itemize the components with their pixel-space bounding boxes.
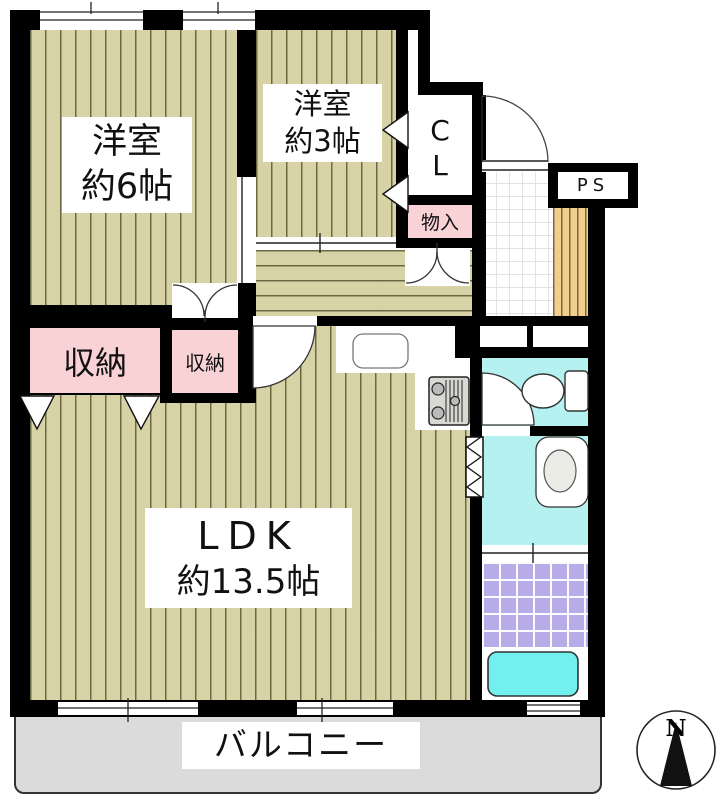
bedroom-6-name: 洋室 [92,120,162,165]
ldk-name: LDK [197,512,299,561]
gas-stove [429,377,469,425]
floor-plan: 収納 収納 物入 [0,0,726,800]
cl-door-triangles [383,112,408,212]
entrance-door [482,96,548,162]
closet-large-door-triangles [20,396,159,429]
bedroom-6-label: 洋室 約6帖 [62,117,192,213]
pipe-space-label: PS [558,172,628,199]
bathtub [488,652,578,696]
bedroom-3-name: 洋室 [293,86,351,123]
cl-letter-l: L [432,148,448,183]
balcony-text: バルコニー [214,724,388,766]
accordion-door [466,437,483,497]
ldk-size: 約13.5帖 [177,561,321,605]
kitchen-sink [353,334,408,368]
bedroom-6-size: 約6帖 [81,165,173,210]
bedroom-3-label: 洋室 約3帖 [263,84,382,162]
washbasin [536,437,588,507]
ldk-door [253,326,315,388]
balcony-label: バルコニー [182,722,420,769]
closet-small-double-door [173,285,237,322]
storage-double-door [406,243,469,283]
compass-north-label: N [665,715,686,742]
closet-cl-label: C L [408,100,472,195]
toilet [522,371,588,411]
ps-text: PS [577,174,609,197]
bedroom-3-size: 約3帖 [284,123,360,160]
ldk-label: LDK 約13.5帖 [145,508,352,608]
cl-letter-c: C [430,113,450,148]
compass-north-arrow: N [637,711,715,789]
